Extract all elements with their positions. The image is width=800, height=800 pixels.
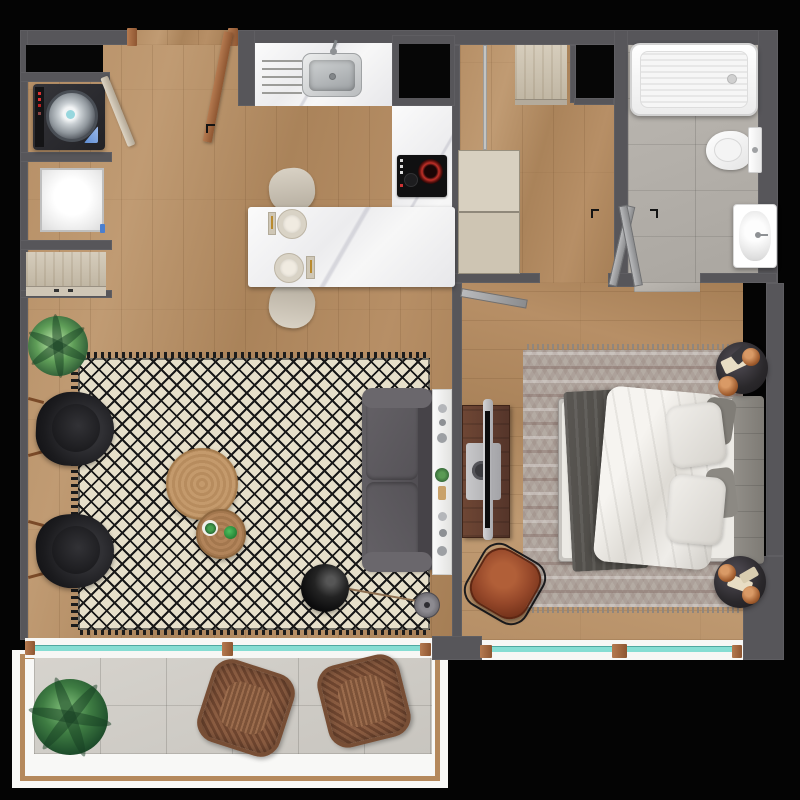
wall-left [20,30,28,640]
window-frame-block [222,642,233,656]
entry-door-frame-left [127,28,137,46]
bedroom-rug-fringe-bottom [527,606,739,613]
shoe-cabinet [26,252,106,288]
storage-niche [26,45,103,72]
faucet-base [330,48,337,55]
sofa-armrest-top [362,388,432,408]
bed-pillow-white-2 [665,474,727,547]
hall-wardrobe-mid [458,150,520,274]
toilet-flush-button [752,147,758,153]
console-cup [438,404,447,413]
floor-lamp-shade [301,564,349,612]
bed-pillow-white-1 [664,401,727,469]
entry-recess-floor [136,30,229,45]
console-cup [438,512,447,521]
cutlery-gold-2 [310,260,312,273]
bathroom-floor-doorway [634,283,700,292]
entry-door-handle [206,124,215,133]
hall-recess [576,45,614,98]
armchair-2-seat [52,526,100,574]
plate-1-inner [283,215,301,233]
drainboard [262,58,302,94]
sink-drain [329,73,336,80]
console-bowl [437,433,447,443]
sliding-rail [483,45,487,150]
white-appliance [40,168,104,232]
door-handle-left [591,209,599,218]
washer-display-dot [38,92,41,95]
copper-lamp [718,564,736,582]
coffee-table-small [196,509,246,559]
console-basket [438,486,446,500]
wall-right-bedroom [766,283,784,556]
tv-screen [485,411,490,528]
console-cup [439,529,447,537]
wall-window-junction [432,636,482,660]
console-cup [439,419,446,426]
sofa-armrest-bottom [362,552,432,572]
refrigerator-recess [399,44,450,98]
laundry-niche-divider-3 [20,240,112,250]
cabinet-handle-1 [54,289,59,292]
window-mullion [612,644,627,658]
floor-plan [0,0,800,800]
window-frame-block [25,641,35,655]
wall-recess2-bottom [574,98,614,105]
window-frame-block [420,643,431,656]
wall-counter-back [238,30,255,106]
washer-agitator [66,110,75,119]
window-mullion [732,645,742,658]
washbasin-spout [760,234,768,236]
wall-top-left [20,30,128,45]
wall-living-bedroom-divider [452,283,462,638]
console-plant [435,468,449,482]
laundry-niche-divider-1 [20,72,110,82]
copper-lamp [742,586,760,604]
cutlery-gold-1 [271,216,273,229]
window-mullion [480,645,492,658]
copper-lamp [718,376,738,396]
balcony-plant [32,679,108,755]
succulent-plant [205,523,216,534]
cooktop-controls [400,159,403,162]
bed-headboard [732,396,764,564]
hall-wardrobe-top [515,45,567,103]
appliance-blue-latch [100,224,105,233]
hall-wardrobe-top-edge [515,99,567,105]
living-plant [28,316,88,376]
plate-2-inner [280,259,298,277]
cabinet-handle-2 [68,289,73,292]
moss-plant [224,526,237,539]
washer-control-panel [35,87,44,147]
cooktop-burner-small [404,173,418,187]
sofa-back-cushion [418,393,432,567]
shoe-cabinet-front [26,286,106,296]
floor-lamp-pole [424,602,430,608]
wall-hall-bottom [452,273,540,283]
console-bowl [437,546,447,556]
bathtub-drain [727,74,737,84]
laundry-niche-divider-2 [20,152,112,162]
copper-lamp [742,348,760,366]
door-handle-right [650,209,658,218]
toilet-seat [714,138,742,162]
armchair-1-seat [52,404,100,452]
wall-bedroom-top [700,273,777,283]
cooktop-burner-active [418,159,443,184]
sofa-seat-cushion-1 [366,396,418,480]
